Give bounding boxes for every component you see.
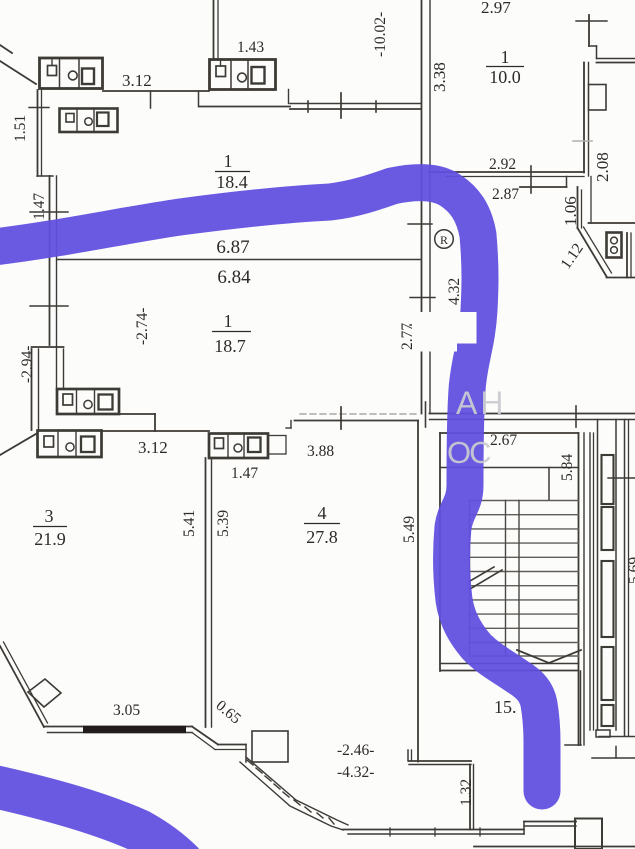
svg-text:21.9: 21.9	[34, 529, 66, 549]
svg-text:15.: 15.	[494, 697, 517, 717]
svg-text:1.47: 1.47	[31, 193, 48, 220]
svg-text:3.88: 3.88	[307, 443, 334, 460]
svg-text:6.87: 6.87	[216, 237, 249, 258]
svg-text:18.4: 18.4	[216, 172, 248, 192]
svg-text:6.84: 6.84	[217, 267, 251, 288]
svg-text:5.41: 5.41	[181, 510, 198, 537]
svg-text:-4.32-: -4.32-	[337, 764, 374, 781]
svg-text:1.51: 1.51	[12, 115, 29, 142]
svg-text:1.32: 1.32	[458, 779, 475, 806]
svg-text:ОС: ОС	[447, 435, 491, 470]
svg-text:-2.94-: -2.94-	[19, 346, 36, 383]
svg-text:1: 1	[501, 47, 510, 67]
svg-text:1.47: 1.47	[231, 465, 258, 482]
svg-text:1.06: 1.06	[561, 196, 580, 226]
svg-text:5.69: 5.69	[626, 557, 635, 584]
svg-text:4: 4	[318, 503, 327, 523]
svg-text:2.92: 2.92	[489, 156, 516, 173]
svg-text:3.05: 3.05	[113, 702, 140, 719]
svg-text:5.39: 5.39	[215, 510, 232, 537]
svg-text:5.49: 5.49	[401, 516, 418, 543]
svg-text:27.8: 27.8	[306, 527, 338, 547]
svg-text:-10.02-: -10.02-	[372, 12, 389, 57]
svg-text:10.0: 10.0	[489, 67, 521, 87]
svg-text:5.84: 5.84	[559, 454, 576, 481]
svg-text:4.32: 4.32	[446, 278, 463, 305]
svg-text:3.38: 3.38	[430, 62, 449, 92]
svg-text:1: 1	[224, 151, 233, 171]
svg-text:3.12: 3.12	[138, 438, 168, 457]
svg-text:3.12: 3.12	[122, 71, 152, 90]
svg-text:-2.74-: -2.74-	[134, 308, 151, 345]
svg-text:АН: АН	[456, 385, 506, 421]
svg-text:1: 1	[224, 311, 233, 331]
svg-text:R: R	[440, 233, 448, 247]
svg-text:-2.46-: -2.46-	[337, 742, 374, 759]
svg-text:2.67: 2.67	[490, 432, 517, 449]
svg-text:2.08: 2.08	[593, 152, 612, 182]
svg-text:18.7: 18.7	[214, 336, 246, 356]
svg-text:1.43: 1.43	[237, 39, 264, 56]
svg-text:2.97: 2.97	[481, 0, 511, 17]
svg-text:3: 3	[45, 506, 54, 526]
svg-text:2.87: 2.87	[492, 186, 519, 203]
